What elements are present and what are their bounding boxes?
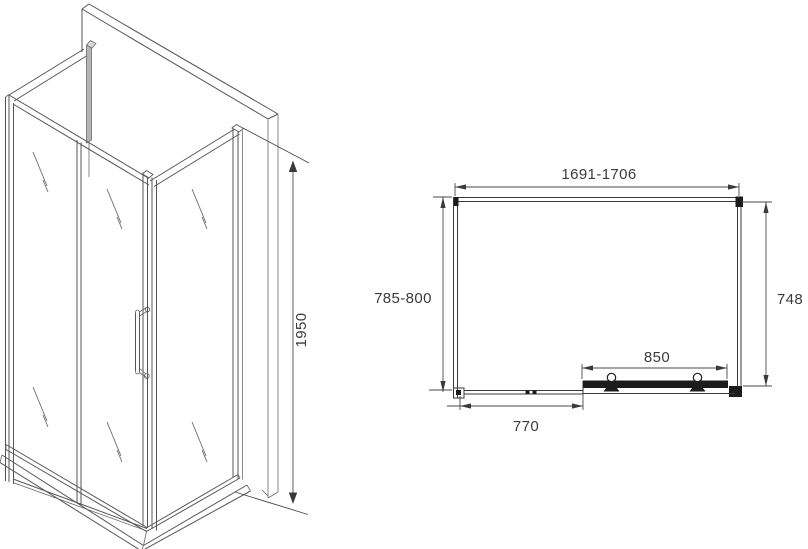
height-dimension-label: 1950 — [293, 313, 310, 348]
isometric-view: 1950 — [0, 4, 310, 549]
right-wall — [150, 125, 244, 480]
door-stile-posts — [143, 171, 157, 531]
door-width-dimension: 850 — [582, 349, 727, 379]
side-panel-dimension: 770 — [447, 394, 583, 435]
back-wall-panel — [82, 4, 278, 498]
door-width-dimension-label: 850 — [644, 349, 670, 366]
glass-hatch-marks — [33, 152, 207, 462]
right-depth-dimension-label: 748 — [777, 291, 803, 308]
height-dimension: 1950 — [235, 128, 310, 515]
left-depth-dimension-label: 785-800 — [374, 290, 432, 307]
technical-drawing-page: 1950 — [0, 0, 808, 549]
door-divider-post — [77, 140, 81, 506]
left-wall-top-rail — [9, 49, 88, 101]
right-depth-dimension: 748 — [742, 202, 803, 386]
side-panel-dimension-label: 770 — [513, 418, 539, 435]
wall-corner-post — [87, 41, 97, 178]
width-dimension-label: 1691-1706 — [561, 166, 636, 183]
sliding-door-bar — [583, 373, 728, 391]
drawing-svg: 1950 — [0, 0, 808, 549]
width-dimension: 1691-1706 — [455, 166, 739, 196]
plan-view: 1691-1706 785-800 748 850 — [374, 166, 803, 435]
shower-tray — [0, 445, 251, 549]
left-depth-dimension: 785-800 — [374, 197, 452, 392]
